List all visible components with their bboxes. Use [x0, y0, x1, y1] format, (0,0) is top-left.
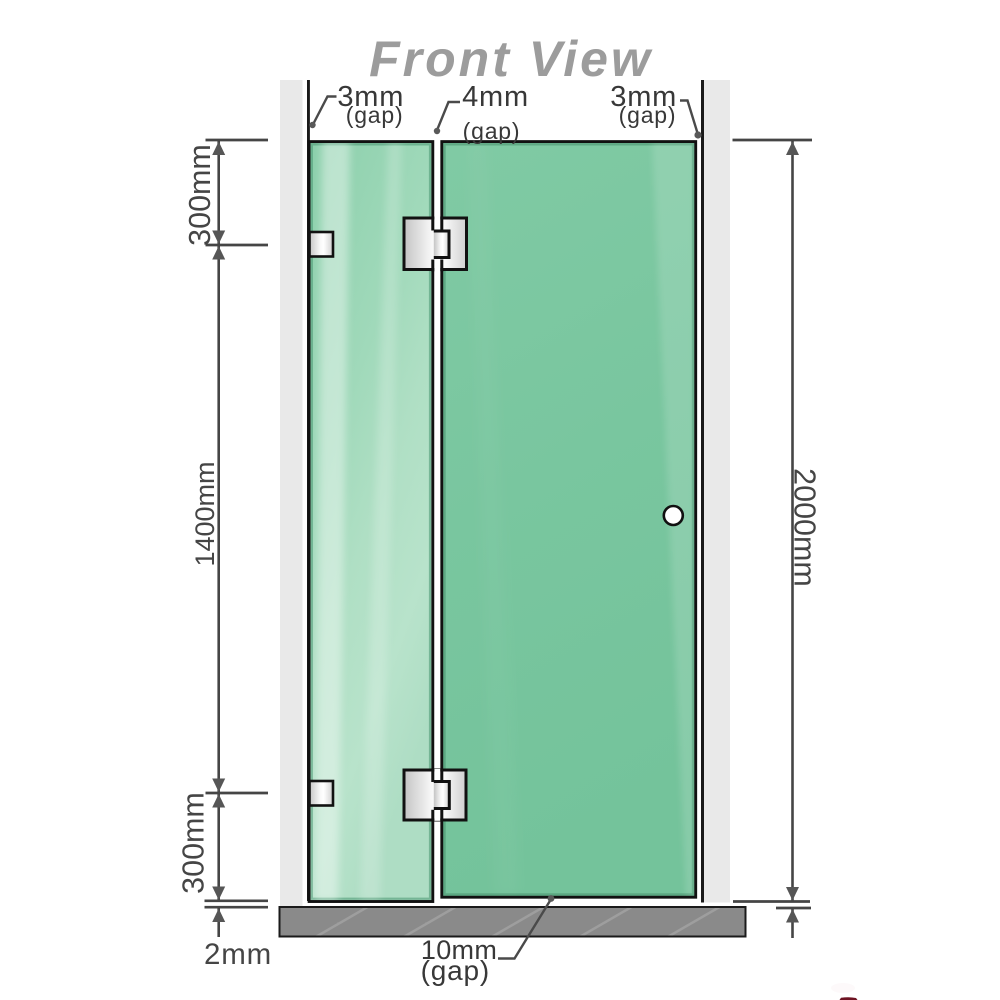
svg-text:(gap): (gap) [463, 118, 521, 144]
svg-text:Front View: Front View [369, 31, 653, 87]
svg-text:(gap): (gap) [619, 102, 677, 128]
svg-text:2mm: 2mm [204, 938, 272, 971]
svg-text:2000mm: 2000mm [788, 468, 822, 587]
svg-text:(gap): (gap) [421, 955, 490, 986]
svg-text:4mm: 4mm [462, 81, 529, 113]
svg-text:300mm: 300mm [177, 792, 211, 894]
svg-text:1400mm: 1400mm [190, 461, 220, 566]
svg-text:300mm: 300mm [183, 144, 217, 246]
svg-text:(gap): (gap) [346, 102, 404, 128]
